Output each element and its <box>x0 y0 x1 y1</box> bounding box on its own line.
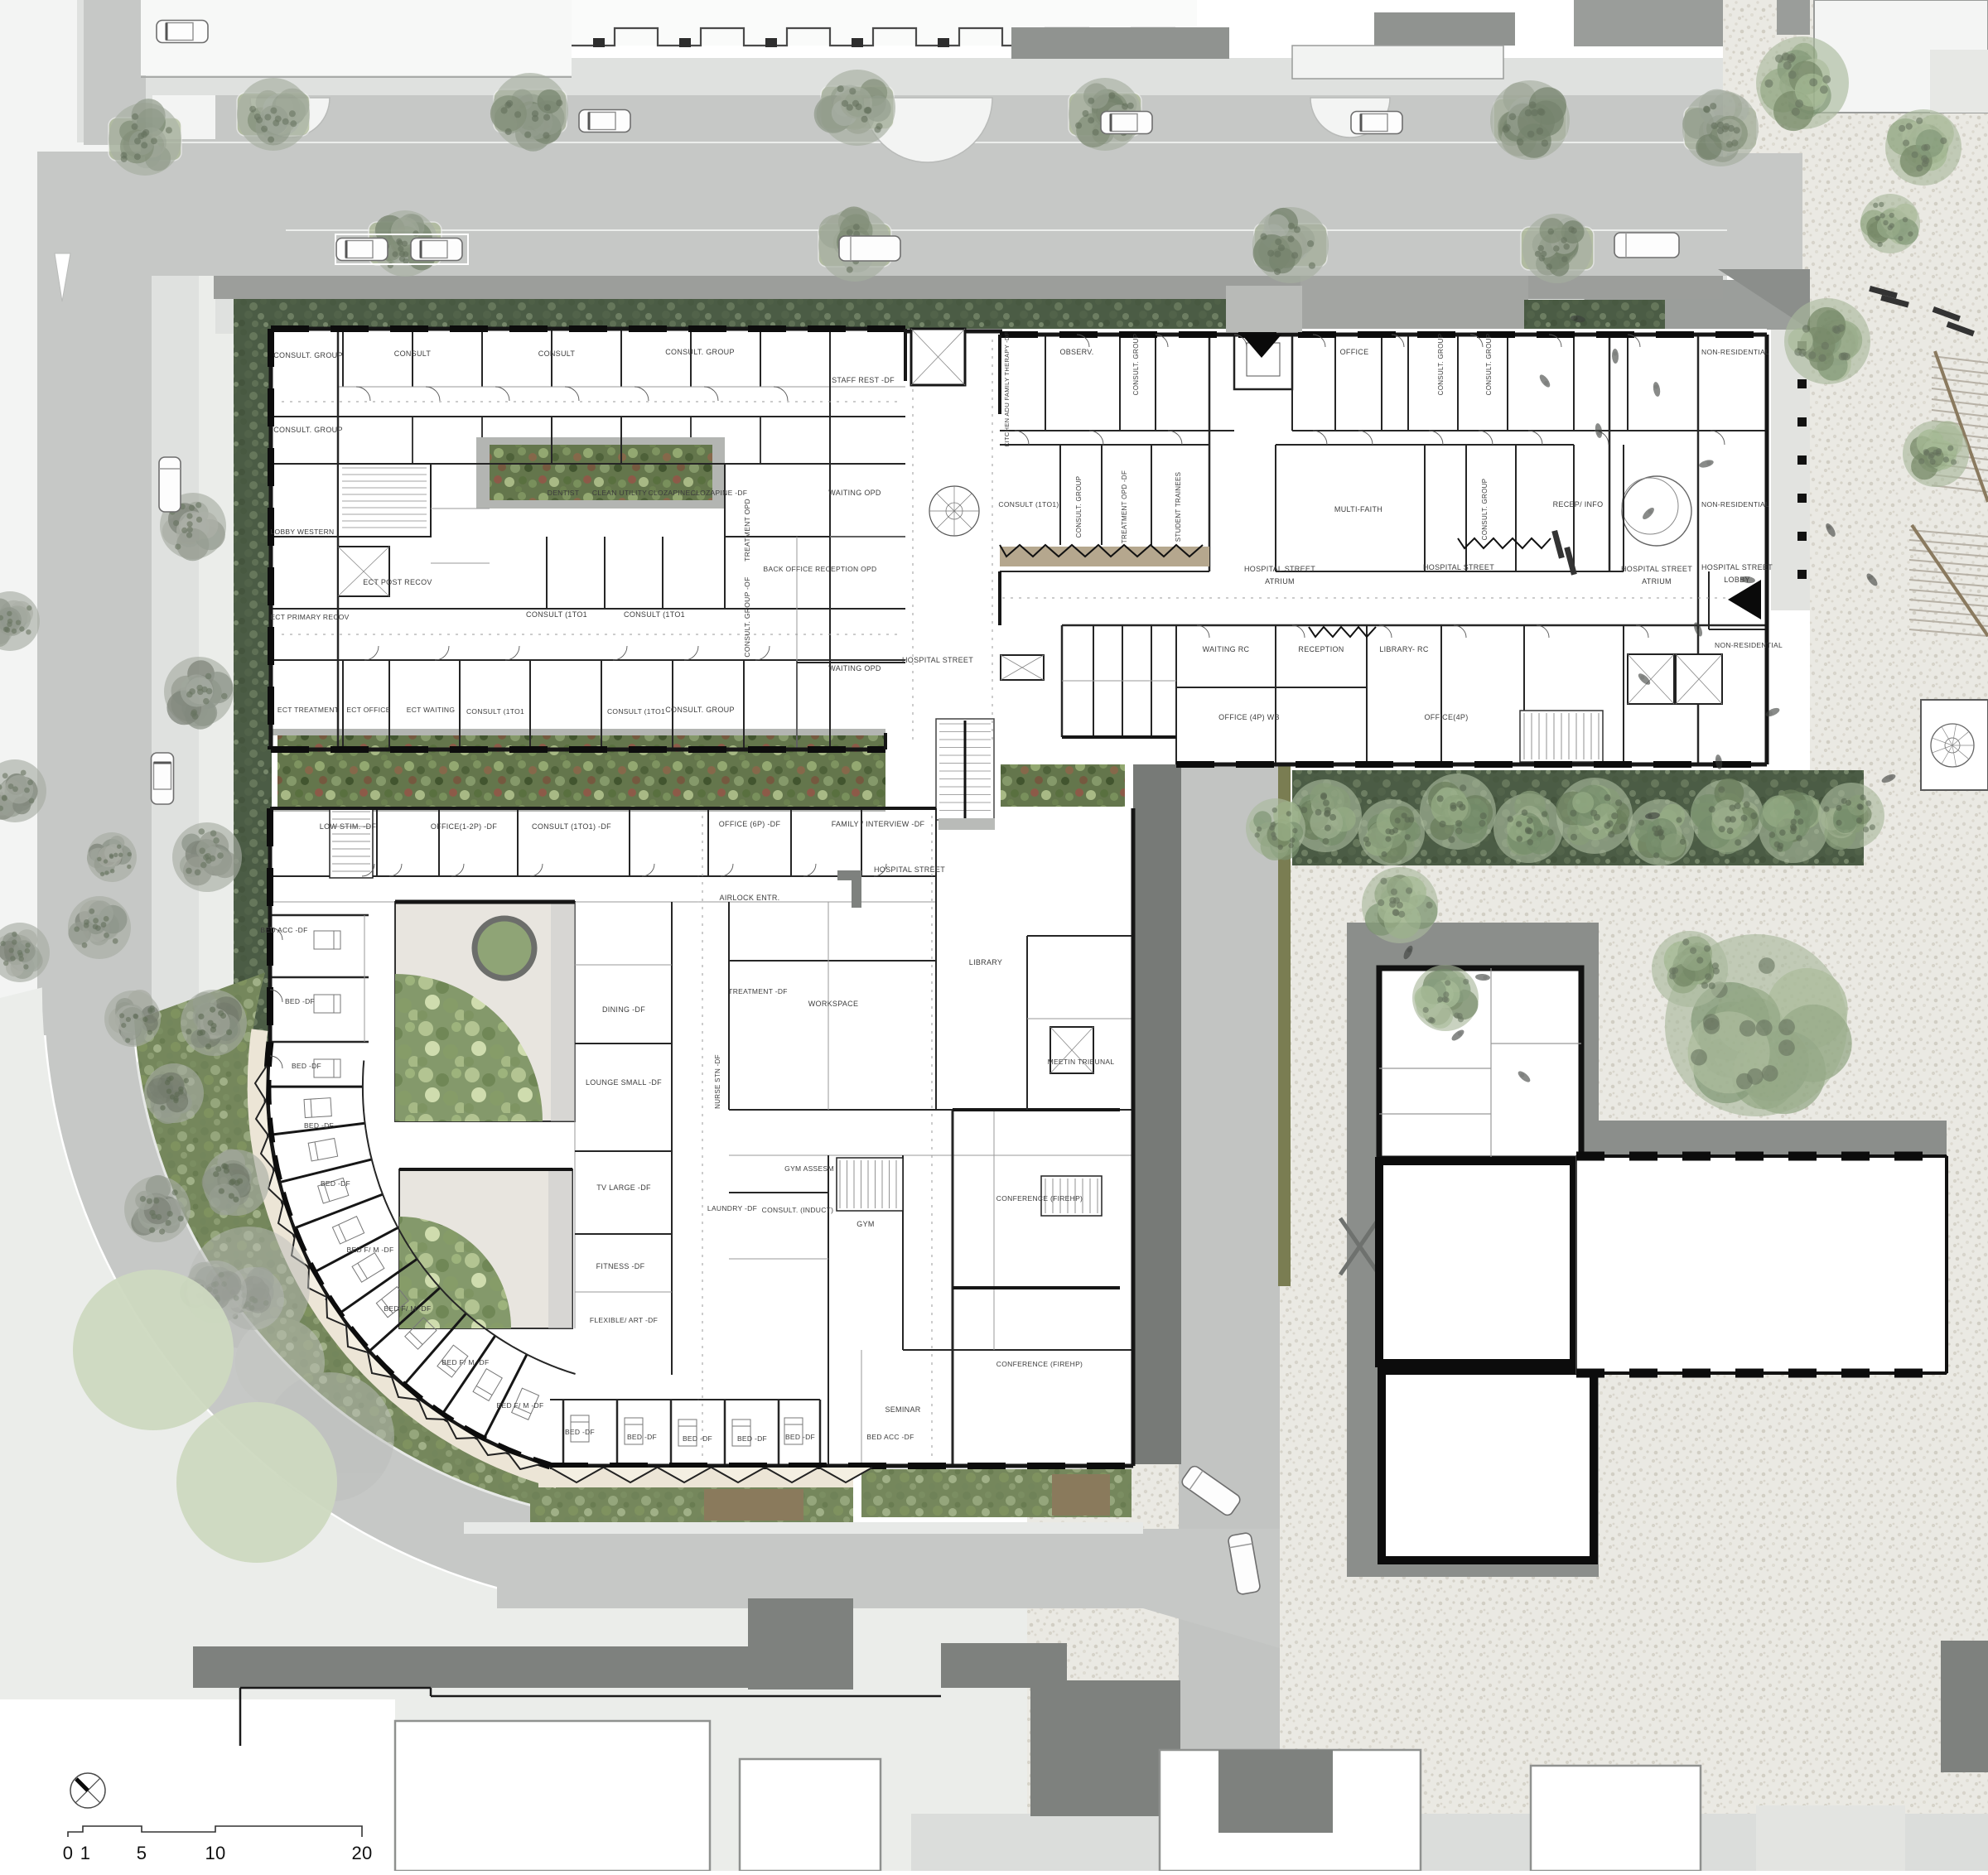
svg-text:RECEPTION: RECEPTION <box>1298 645 1344 653</box>
svg-text:BED -DF: BED -DF <box>304 1121 334 1130</box>
svg-text:CLOZAPINE -DF: CLOZAPINE -DF <box>691 489 748 497</box>
svg-text:FAMILY / INTERVIEW -DF: FAMILY / INTERVIEW -DF <box>832 820 925 828</box>
svg-text:10: 10 <box>205 1843 225 1863</box>
svg-text:ECT PRIMARY RECOV: ECT PRIMARY RECOV <box>270 613 349 621</box>
svg-text:BED -DF: BED -DF <box>292 1062 321 1070</box>
svg-text:WAITING OPD: WAITING OPD <box>828 664 881 672</box>
svg-text:ECT POST RECOV: ECT POST RECOV <box>363 578 432 586</box>
svg-text:NON-RESIDENTIAL: NON-RESIDENTIAL <box>1715 641 1783 649</box>
svg-text:CONSULT. GROUP: CONSULT. GROUP <box>1132 334 1140 396</box>
svg-text:OFFICE (6P) -DF: OFFICE (6P) -DF <box>719 820 781 828</box>
svg-text:NURSE STN -DF: NURSE STN -DF <box>714 1054 721 1109</box>
svg-text:BED -DF: BED -DF <box>737 1434 767 1443</box>
svg-text:CONFERENCE (FIREHP): CONFERENCE (FIREHP) <box>996 1360 1083 1368</box>
svg-text:CONSULT: CONSULT <box>538 349 576 358</box>
svg-text:GYM ASSESM: GYM ASSESM <box>784 1164 834 1173</box>
svg-text:NON-RESIDENTIAL: NON-RESIDENTIAL <box>1701 500 1769 509</box>
svg-text:MULTI-FAITH: MULTI-FAITH <box>1334 505 1382 513</box>
svg-text:MEETIN TRIBUNAL: MEETIN TRIBUNAL <box>1048 1058 1115 1066</box>
svg-text:SEMINAR: SEMINAR <box>885 1405 920 1414</box>
svg-text:HOSPITAL STREET: HOSPITAL STREET <box>902 656 973 664</box>
svg-text:LIBRARY- RC: LIBRARY- RC <box>1379 645 1429 653</box>
svg-text:BED ACC -DF: BED ACC -DF <box>260 926 307 934</box>
svg-text:LOBBY: LOBBY <box>1724 576 1750 584</box>
svg-text:OFFICE(1-2P) -DF: OFFICE(1-2P) -DF <box>431 822 498 831</box>
svg-text:CONSULT. GROUP: CONSULT. GROUP <box>273 351 343 359</box>
svg-text:TREATMENT OPD: TREATMENT OPD <box>743 499 751 562</box>
svg-text:CONSULT (1TO1: CONSULT (1TO1 <box>526 610 587 619</box>
svg-text:CONSULT. GROUP: CONSULT. GROUP <box>665 348 735 356</box>
svg-text:0: 0 <box>63 1843 74 1863</box>
svg-text:STUDENT TRAINEES: STUDENT TRAINEES <box>1175 472 1182 542</box>
svg-text:CONSULT. GROUP: CONSULT. GROUP <box>665 706 735 714</box>
svg-text:BED F/ M -DF: BED F/ M -DF <box>347 1246 394 1254</box>
svg-text:CONSULT. GROUP: CONSULT. GROUP <box>1075 476 1083 538</box>
svg-text:CONSULT (1TO1): CONSULT (1TO1) <box>998 500 1059 509</box>
svg-text:OBSERV.: OBSERV. <box>1059 348 1093 356</box>
svg-text:HOSPITAL STREET: HOSPITAL STREET <box>1244 565 1315 573</box>
svg-text:DINING -DF: DINING -DF <box>602 1005 645 1014</box>
svg-text:ECT OFFICE: ECT OFFICE <box>346 706 390 714</box>
svg-text:BED ACC -DF: BED ACC -DF <box>866 1433 914 1441</box>
svg-text:ECT TREATMENT: ECT TREATMENT <box>277 706 339 714</box>
svg-text:LOBBY WESTERN: LOBBY WESTERN <box>271 528 335 536</box>
svg-text:FLEXIBLE/ ART -DF: FLEXIBLE/ ART -DF <box>590 1316 658 1324</box>
svg-text:CONSULT (1TO1: CONSULT (1TO1 <box>624 610 685 619</box>
svg-text:KITCHEN ADU FAMILY THERAPY -DF: KITCHEN ADU FAMILY THERAPY -DF <box>1003 331 1011 446</box>
svg-text:WAITING RC: WAITING RC <box>1203 645 1250 653</box>
svg-text:CONSULT. GROUP: CONSULT. GROUP <box>1485 334 1493 396</box>
svg-text:ECT WAITING: ECT WAITING <box>407 706 456 714</box>
svg-text:CONSULT (1TO1: CONSULT (1TO1 <box>607 707 665 716</box>
svg-text:ATRIUM: ATRIUM <box>1642 577 1672 586</box>
svg-text:OFFICE(4P): OFFICE(4P) <box>1424 713 1468 721</box>
svg-text:TV LARGE -DF: TV LARGE -DF <box>596 1183 651 1192</box>
svg-text:BED F/ M -DF: BED F/ M -DF <box>497 1401 544 1410</box>
svg-text:BED -DF: BED -DF <box>321 1179 350 1188</box>
svg-text:ATRIUM: ATRIUM <box>1265 577 1295 586</box>
svg-text:20: 20 <box>351 1843 372 1863</box>
svg-text:BACK OFFICE RECEPTION OPD: BACK OFFICE RECEPTION OPD <box>764 565 877 573</box>
svg-text:STAFF REST -DF: STAFF REST -DF <box>832 376 895 384</box>
svg-text:RECEP/ INFO: RECEP/ INFO <box>1553 500 1604 509</box>
svg-text:TREATMENT OPD -DF: TREATMENT OPD -DF <box>1121 470 1128 543</box>
svg-text:LOW STIM. -DF: LOW STIM. -DF <box>320 822 377 831</box>
svg-text:LAUNDRY -DF: LAUNDRY -DF <box>707 1204 757 1212</box>
svg-text:CONSULT. GROUP: CONSULT. GROUP <box>1481 479 1489 541</box>
svg-text:CLOZAPINE...: CLOZAPINE... <box>649 489 697 497</box>
svg-text:OFFICE: OFFICE <box>1340 348 1369 356</box>
svg-text:CONSULT. (INDUCT): CONSULT. (INDUCT) <box>762 1206 834 1214</box>
svg-text:TREATMENT -DF: TREATMENT -DF <box>728 987 788 995</box>
svg-text:WAITING OPD: WAITING OPD <box>828 489 881 497</box>
svg-text:HOSPITAL STREET: HOSPITAL STREET <box>1701 563 1773 571</box>
svg-text:OFFICE (4P) WB: OFFICE (4P) WB <box>1218 713 1280 721</box>
svg-text:1: 1 <box>80 1843 91 1863</box>
svg-text:AIRLOCK ENTR.: AIRLOCK ENTR. <box>720 894 780 902</box>
svg-text:CLEAN UTILITY: CLEAN UTILITY <box>592 489 647 497</box>
svg-text:CONSULT (1TO1: CONSULT (1TO1 <box>466 707 524 716</box>
svg-text:BED -DF: BED -DF <box>565 1428 595 1436</box>
svg-text:BED -DF: BED -DF <box>285 997 315 1005</box>
svg-text:HOSPITAL STREET: HOSPITAL STREET <box>1621 565 1692 573</box>
svg-text:LIBRARY: LIBRARY <box>969 958 1002 966</box>
svg-text:CONSULT. GROUP: CONSULT. GROUP <box>273 426 343 434</box>
svg-text:CONFERENCE (FIREHP): CONFERENCE (FIREHP) <box>996 1194 1083 1203</box>
svg-text:5: 5 <box>137 1843 147 1863</box>
svg-text:CONSULT. GROUP: CONSULT. GROUP <box>1437 334 1445 396</box>
svg-text:HOSPITAL STREET: HOSPITAL STREET <box>874 865 945 874</box>
svg-text:BED -DF: BED -DF <box>683 1434 712 1443</box>
svg-text:DENTIST: DENTIST <box>548 489 579 497</box>
svg-text:NON-RESIDENTIAL: NON-RESIDENTIAL <box>1701 348 1769 356</box>
svg-text:CONSULT. GROUP -OF: CONSULT. GROUP -OF <box>743 576 751 657</box>
svg-text:CONSULT: CONSULT <box>394 349 432 358</box>
svg-text:GYM: GYM <box>856 1220 874 1228</box>
svg-text:BED -DF: BED -DF <box>627 1433 657 1441</box>
svg-text:BED -DF: BED -DF <box>785 1433 815 1441</box>
svg-text:FITNESS -DF: FITNESS -DF <box>596 1262 645 1270</box>
svg-text:CONSULT (1TO1) -DF: CONSULT (1TO1) -DF <box>532 822 611 831</box>
svg-text:LOUNGE SMALL -DF: LOUNGE SMALL -DF <box>586 1078 662 1087</box>
svg-text:BED F/ M -DF: BED F/ M -DF <box>384 1304 432 1313</box>
svg-text:WORKSPACE: WORKSPACE <box>808 1000 859 1008</box>
svg-text:HOSPITAL STREET: HOSPITAL STREET <box>1423 563 1494 571</box>
svg-text:BED F/ M -DF: BED F/ M -DF <box>442 1358 490 1366</box>
